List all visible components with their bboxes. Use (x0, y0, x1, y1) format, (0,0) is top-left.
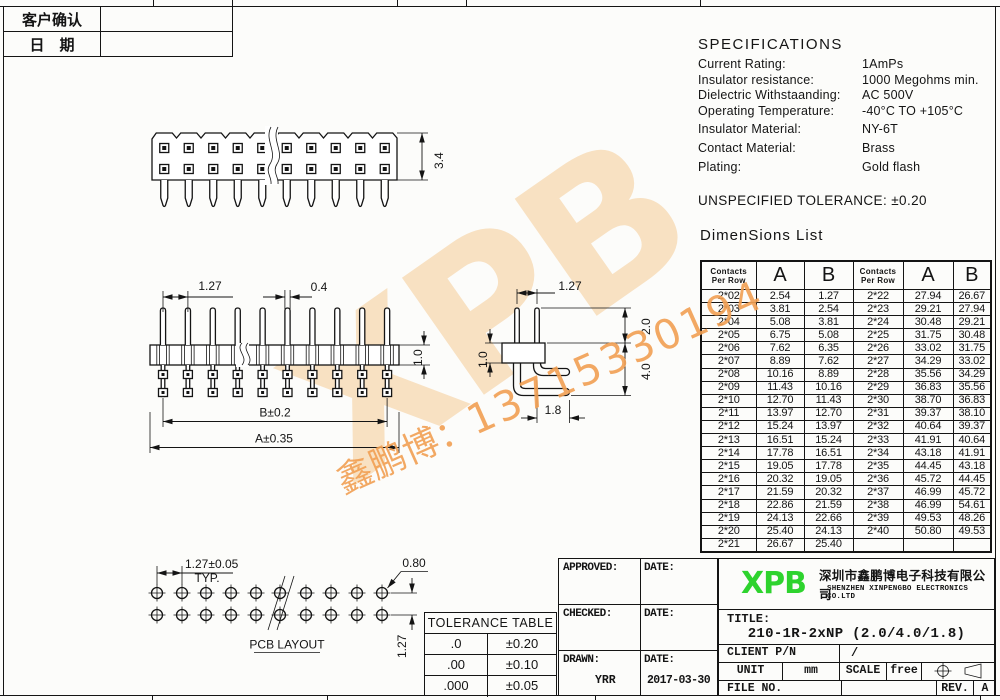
dims-row: 2*056.755.082*2531.7530.48 (701, 329, 991, 342)
approved-date-label: DATE: (644, 562, 675, 574)
dim-body-height: 1.0 (476, 329, 502, 377)
title-block: XPB 深圳市鑫鹏博电子科技有限公司 SHENZHEN XINPENGBO EL… (718, 558, 995, 696)
dims-row: 2*022.541.272*2227.9426.67 (701, 290, 991, 303)
file-no-value (841, 681, 936, 695)
svg-text:A±0.35: A±0.35 (255, 432, 293, 446)
checked-label: CHECKED: (563, 608, 612, 620)
dimensions-table: ContactsPer Row A B ContactsPer Row A B … (700, 260, 992, 553)
drawing-top-view: 3.4 (125, 112, 460, 222)
title-row: TITLE: 210-1R-2xNP (2.0/4.0/1.8) (719, 610, 994, 645)
svg-text:0.4: 0.4 (311, 280, 328, 294)
file-no-label: FILE NO. (719, 681, 841, 695)
dims-row: 2*2025.4024.132*4050.8049.53 (701, 525, 991, 538)
drawn-date-label: DATE: (644, 654, 675, 666)
dims-row: 2*1113.9712.702*3139.3738.10 (701, 407, 991, 420)
projection-cone-icon (965, 664, 981, 678)
svg-text:3.4: 3.4 (432, 152, 446, 169)
svg-text:1.27: 1.27 (558, 279, 582, 293)
connector-body (502, 343, 545, 363)
scale-value: free (886, 663, 921, 680)
tolerance-row: .00±0.10 (425, 655, 556, 676)
spec-item: Operating Temperature:-40°C TO +105°C (698, 104, 998, 120)
dims-row: 2*1519.0517.782*3544.4543.18 (701, 460, 991, 473)
dims-row: 2*067.626.352*2633.0231.75 (701, 342, 991, 355)
svg-text:1.8: 1.8 (545, 403, 562, 417)
approved-row: APPROVED: DATE: (559, 559, 717, 605)
drawn-label: DRAWN: (563, 654, 600, 666)
svg-text:1.27: 1.27 (395, 634, 409, 658)
client-date-label: 日 期 (4, 32, 101, 57)
right-angle-tails (514, 363, 570, 396)
specifications: SPECIFICATIONS Current Rating:1AmPs Insu… (698, 36, 998, 175)
dims-row: 2*1316.5115.242*3341.9140.64 (701, 434, 991, 447)
scale-label: SCALE (839, 663, 886, 680)
col-header-b: B (953, 261, 991, 290)
client-confirm-table: 客户确认 日 期 (3, 6, 233, 57)
client-confirm-value (101, 7, 233, 32)
title-label: TITLE: (727, 612, 770, 626)
tolerance-row: .000±0.05 (425, 676, 556, 696)
unit-label: UNIT (719, 663, 782, 680)
svg-text:1.0: 1.0 (411, 349, 425, 366)
part-number: 210-1R-2xNP (2.0/4.0/1.8) (719, 626, 994, 642)
spec-item: Current Rating:1AmPs (698, 57, 998, 73)
client-date-value (101, 32, 233, 57)
dimensions-list-title: DimenSions List (700, 227, 823, 244)
col-header-contacts: ContactsPer Row (853, 261, 903, 290)
dims-row: 2*1822.8621.592*3846.9954.61 (701, 499, 991, 512)
dim-pitch: 1.27 (163, 279, 233, 312)
specifications-title: SPECIFICATIONS (698, 36, 998, 53)
file-no-row: FILE NO. REV. A (719, 681, 994, 695)
tolerance-row: .0±0.20 (425, 634, 556, 655)
dim-3-4: 3.4 (397, 133, 446, 180)
dim-pitch: 1.27±0.05 TYP. (157, 557, 239, 585)
spec-item: Dielectric Withstaanding:AC 500V (698, 88, 998, 104)
dims-row: 2*1215.2413.972*3240.6439.37 (701, 420, 991, 433)
dims-row: 2*0810.168.892*2835.5634.29 (701, 368, 991, 381)
dim-b: B±0.2 (163, 398, 387, 427)
unspecified-tolerance: UNSPECIFIED TOLERANCE: ±0.20 (698, 193, 927, 208)
company-logo: XPB (741, 566, 806, 601)
dims-row: 2*1620.3219.052*3645.7244.45 (701, 473, 991, 486)
dim-row-spacing: 1.27 (391, 578, 417, 658)
svg-text:0.80: 0.80 (402, 556, 426, 570)
dims-row: 2*033.812.542*2329.2127.94 (701, 303, 991, 316)
spec-item: Insulator Material:NY-6T (698, 122, 998, 138)
dims-header-row: ContactsPer Row A B ContactsPer Row A B (701, 261, 991, 290)
dim-pin-width: 0.4 (263, 280, 328, 309)
checked-row: CHECKED: DATE: (559, 605, 717, 651)
spec-item: Contact Material:Brass (698, 141, 998, 157)
company-name-en: SHENZHEN XINPENGBO ELECTRONICS CO.LTD (827, 585, 994, 601)
rev-value: A (973, 681, 996, 695)
unit-value: mm (782, 663, 839, 680)
spec-item: Insulator resistance:1000 Megohms min. (698, 73, 998, 89)
svg-text:TYP.: TYP. (194, 571, 219, 585)
svg-text:2.0: 2.0 (639, 318, 653, 335)
col-header-contacts: ContactsPer Row (701, 261, 756, 290)
dims-row: 2*1417.7816.512*3443.1841.91 (701, 447, 991, 460)
tolerance-table-title: TOLERANCE TABLE (425, 613, 556, 634)
dim-hole: 0.80 (388, 556, 429, 588)
pcb-layout-label: PCB LAYOUT (249, 638, 325, 653)
svg-text:1.27±0.05: 1.27±0.05 (185, 557, 239, 571)
tolerance-table: TOLERANCE TABLE .0±0.20 .00±0.10 .000±0.… (424, 612, 557, 696)
svg-text:B±0.2: B±0.2 (259, 406, 291, 420)
client-pn-label: CLIENT P/N (727, 646, 796, 659)
drawn-date-value: 2017-03-30 (647, 674, 710, 687)
dims-row: 2*1012.7011.432*3038.7036.83 (701, 394, 991, 407)
svg-text:1.27: 1.27 (198, 279, 222, 293)
connector-body (150, 345, 399, 365)
dim-foot: 1.8 (521, 380, 585, 423)
dim-body-height: 1.0 (399, 331, 430, 379)
dim-pitch: 1.27 (517, 279, 582, 304)
pin (535, 308, 540, 343)
client-pn-value: / (851, 646, 858, 660)
break-line (236, 343, 250, 367)
drawn-row: DRAWN: YRR DATE: 2017-03-30 (559, 651, 717, 696)
break-line (268, 576, 294, 630)
dim-right: 2.0 4.0 (541, 308, 653, 396)
approved-label: APPROVED: (563, 562, 618, 574)
dims-row: 2*1721.5920.322*3746.9945.72 (701, 486, 991, 499)
drawing-pcb-layout: 1.27±0.05 TYP. 0.80 1.27 PCB LAYOUT (133, 552, 430, 670)
svg-text:PCB LAYOUT: PCB LAYOUT (249, 638, 325, 652)
col-header-a: A (756, 261, 804, 290)
dims-row: 2*078.897.622*2734.2933.02 (701, 355, 991, 368)
svg-text:4.0: 4.0 (639, 363, 653, 380)
pin (515, 308, 520, 343)
svg-text:1.0: 1.0 (476, 351, 490, 368)
projection-symbols (921, 663, 996, 680)
drawing-front-view: 1.27 0.4 1.0 B±0.2 A±0.35 (133, 276, 445, 458)
drawn-value: YRR (595, 674, 616, 687)
dimensions-table-body: 2*022.541.272*2227.9426.672*033.812.542*… (701, 290, 991, 553)
break-line (265, 126, 280, 185)
dims-row: 2*2126.6725.40 (701, 538, 991, 552)
dims-row: 2*045.083.812*2430.4829.21 (701, 316, 991, 329)
approval-block: APPROVED: DATE: CHECKED: DATE: DRAWN: YR… (558, 558, 718, 696)
col-header-b: B (804, 261, 853, 290)
rev-label: REV. (936, 681, 973, 695)
client-confirm-label: 客户确认 (4, 7, 101, 32)
col-header-a: A (903, 261, 953, 290)
company-row: XPB 深圳市鑫鹏博电子科技有限公司 SHENZHEN XINPENGBO EL… (719, 559, 994, 610)
unit-scale-row: UNIT mm SCALE free (719, 663, 994, 681)
dims-row: 2*1924.1322.662*3949.5348.26 (701, 512, 991, 525)
drawing-side-view: 1.27 2.0 4.0 1.0 1.8 (473, 276, 655, 448)
spec-item: Plating:Gold flash (698, 160, 998, 176)
target-symbol-icon (935, 663, 952, 679)
checked-date-label: DATE: (644, 608, 675, 620)
frame-left (3, 6, 4, 695)
client-pn-row: CLIENT P/N / (719, 645, 994, 663)
drawing-sheet: XPB 客户确认 日 期 SPECIFICATIONS Current Rati… (0, 0, 1000, 700)
dims-row: 2*0911.4310.162*2936.8335.56 (701, 381, 991, 394)
